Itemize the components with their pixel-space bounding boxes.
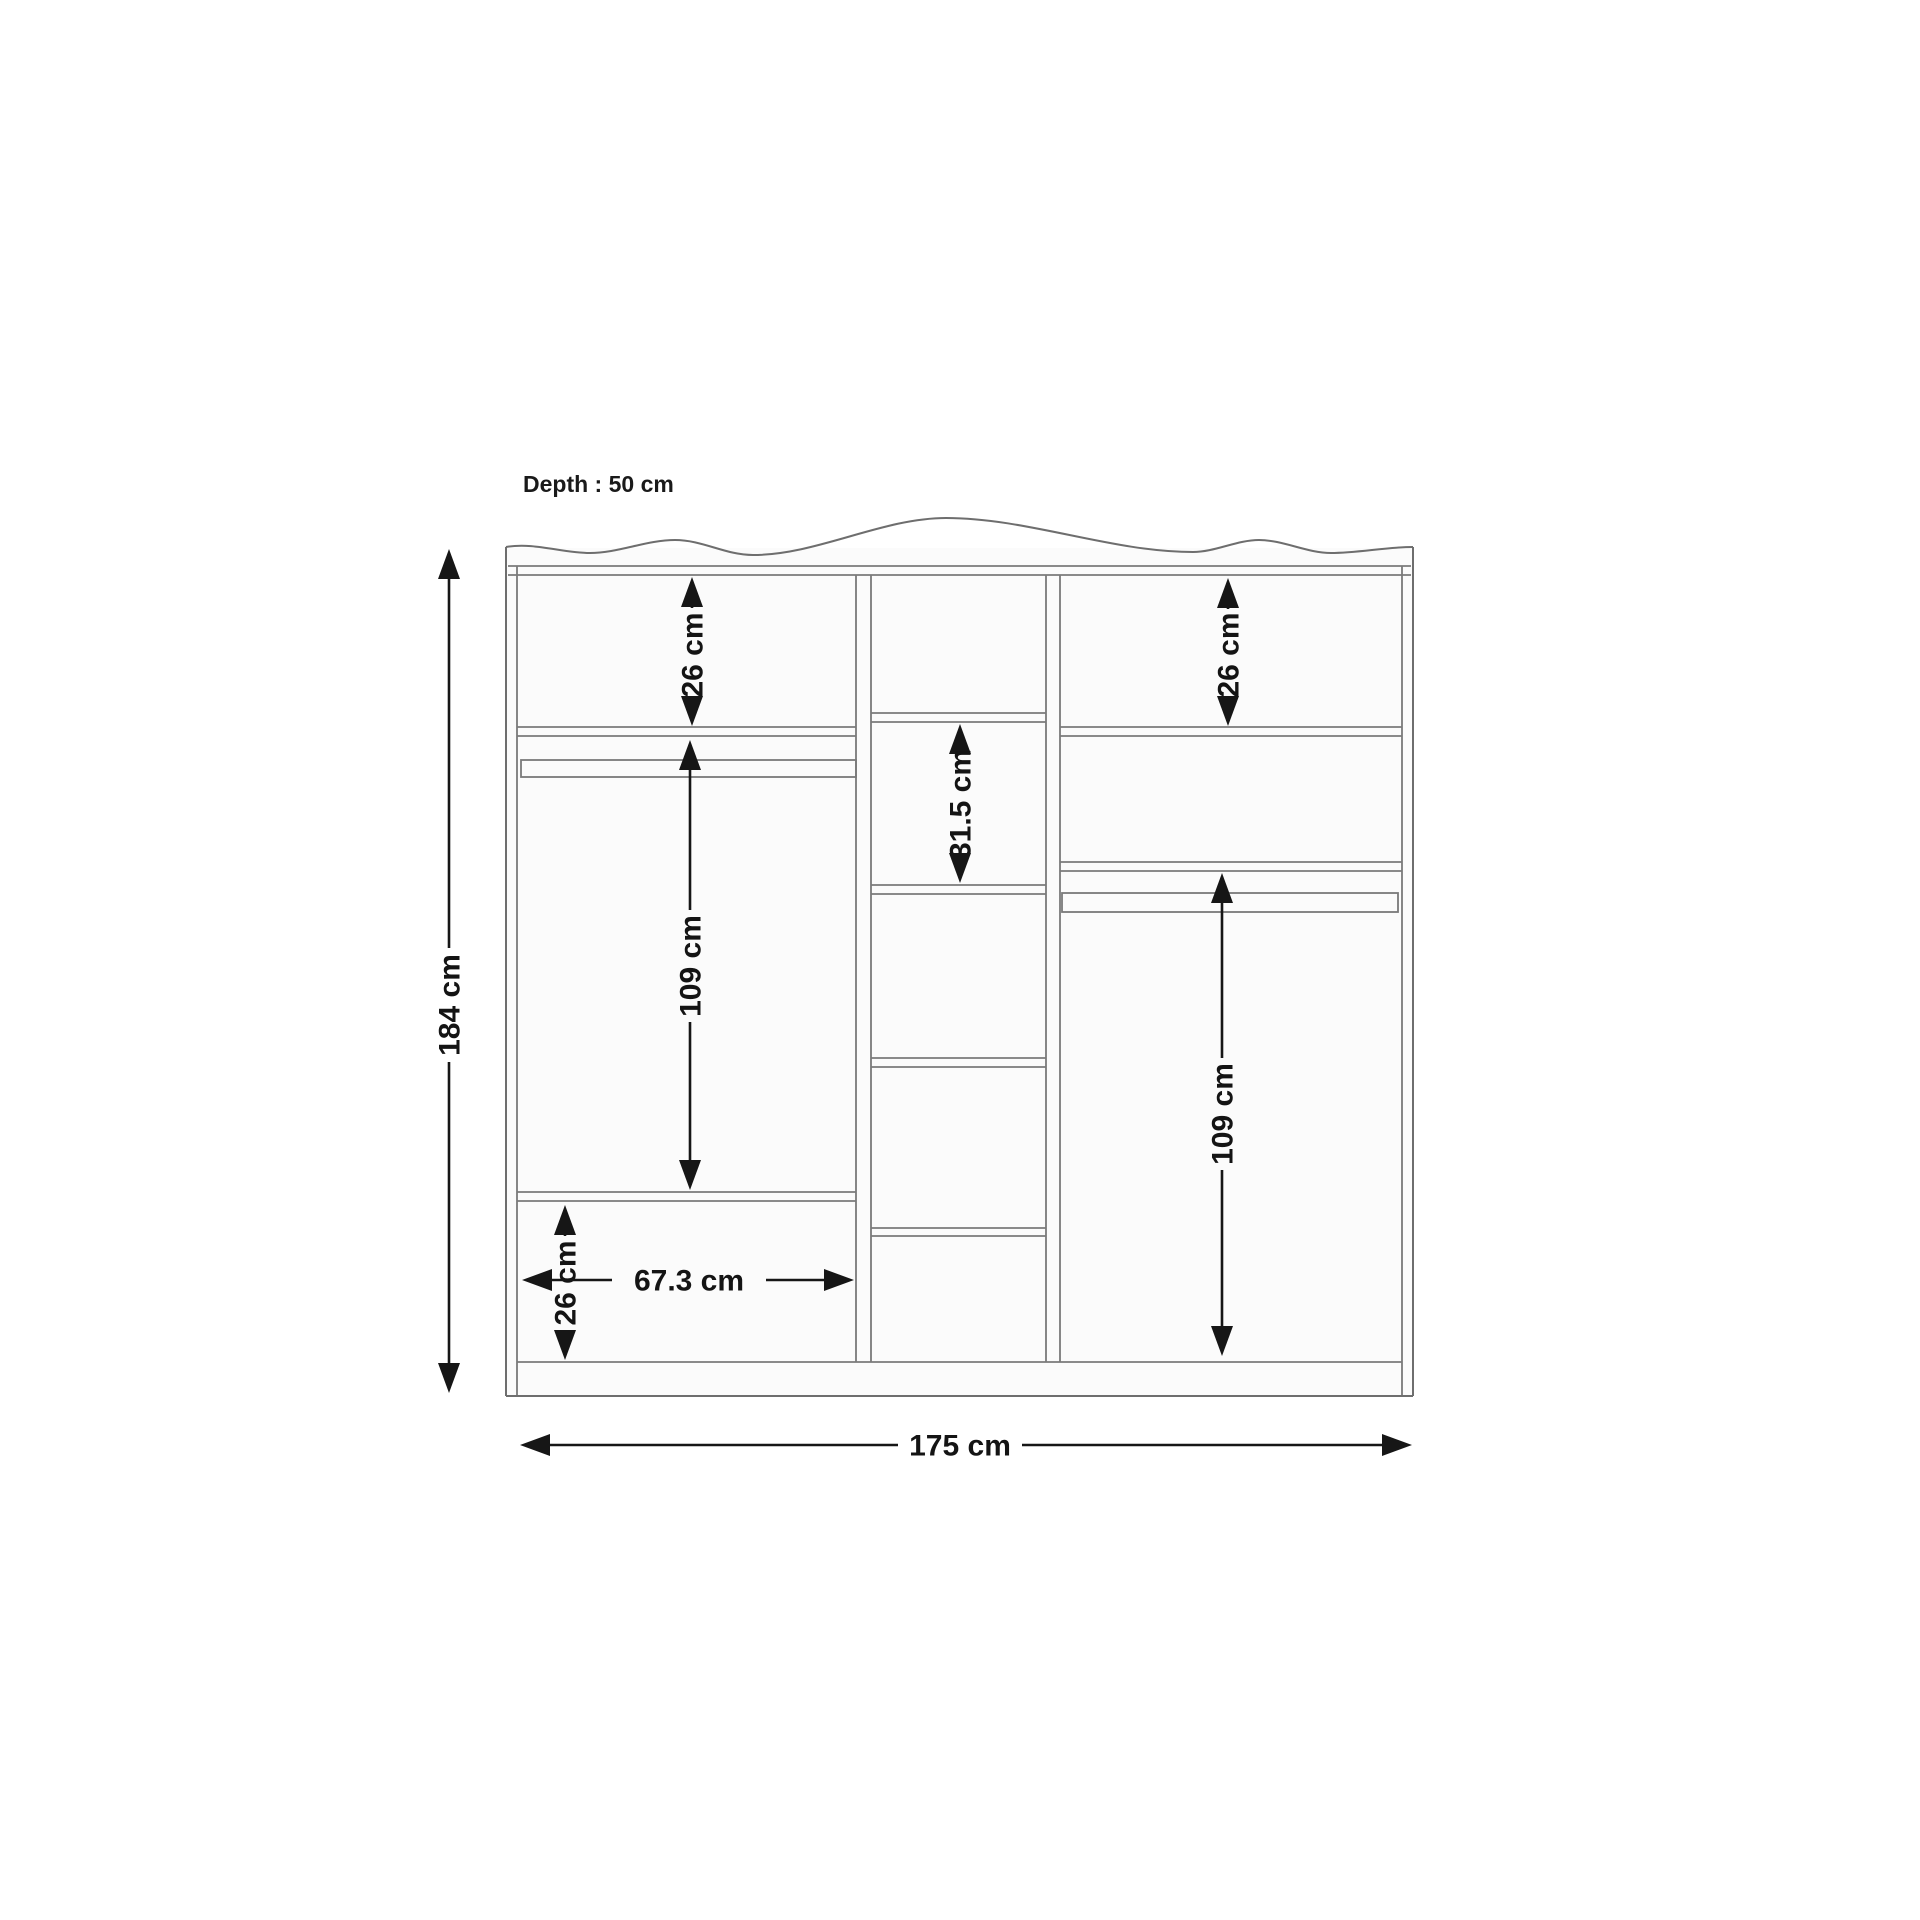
wardrobe-dimension-diagram: Depth : 50 cm <box>0 0 1920 1920</box>
arrow-up-icon <box>438 549 460 579</box>
dimension-label-middle-shelf-spacing: 31.5 cm <box>945 749 978 859</box>
diagram-canvas: Depth : 50 cm <box>0 0 1920 1920</box>
arrow-down-icon <box>438 1363 460 1393</box>
dimension-label-right-top-shelf: 26 cm <box>1213 612 1246 697</box>
dimension-label-left-hanging-height: 109 cm <box>675 915 708 1017</box>
dimension-overall-height: 184 cm <box>434 549 467 1393</box>
dimension-label-overall-height: 184 cm <box>434 954 467 1056</box>
dimension-label-right-hanging-height: 109 cm <box>1207 1063 1240 1165</box>
dimension-overall-width: 175 cm <box>520 1430 1412 1463</box>
arrow-right-icon <box>1382 1434 1412 1456</box>
dimension-label-overall-width: 175 cm <box>909 1430 1011 1463</box>
dimension-label-left-compartment-width: 67.3 cm <box>634 1265 744 1298</box>
dimension-label-left-top-shelf: 26 cm <box>677 612 710 697</box>
depth-label: Depth : 50 cm <box>523 471 674 497</box>
arrow-left-icon <box>520 1434 550 1456</box>
dimension-label-left-bottom-compartment: 26 cm <box>550 1240 583 1325</box>
